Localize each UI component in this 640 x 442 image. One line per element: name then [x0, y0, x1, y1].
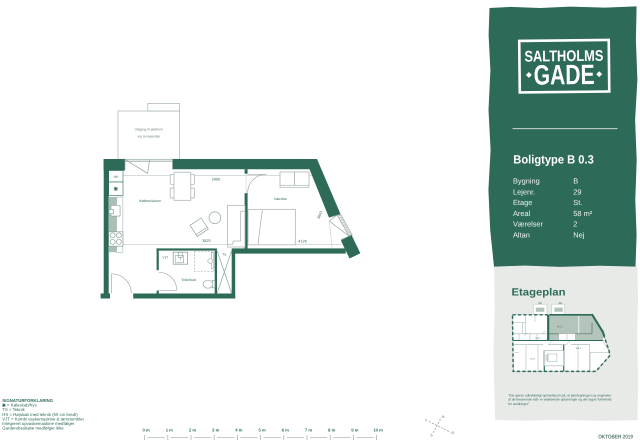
svg-text:for ændringer”: for ændringer” [508, 402, 529, 406]
svg-text:Altan: Altan [513, 230, 530, 239]
svg-text:4126: 4126 [298, 239, 306, 243]
svg-text:VJT: VJT [162, 256, 168, 260]
svg-text:N: N [442, 415, 445, 419]
svg-text:Etage: Etage [513, 198, 532, 207]
svg-text:3 m: 3 m [212, 427, 219, 432]
svg-text:Bygning: Bygning [513, 177, 540, 186]
svg-text:B 0.1: B 0.1 [530, 358, 536, 361]
svg-text:“Der gøres udtrykkeligt opmærk: “Der gøres udtrykkeligt opmærksom på, at… [508, 393, 611, 397]
svg-text:B 0.2: B 0.2 [535, 337, 541, 340]
svg-text:af de berørende mål- er vejled: af de berørende mål- er vejledende oplys… [508, 398, 611, 402]
svg-text:St.: St. [573, 198, 582, 207]
svg-text:29: 29 [573, 187, 581, 196]
svg-text:0 m: 0 m [142, 427, 149, 432]
svg-text:9 m: 9 m [351, 427, 358, 432]
svg-text:Lejenr.: Lejenr. [513, 187, 535, 196]
svg-text:OKTOBER 2019: OKTOBER 2019 [598, 434, 633, 440]
svg-text:8 m: 8 m [328, 427, 335, 432]
svg-text:B 0.3: B 0.3 [557, 326, 563, 329]
svg-text:2 m: 2 m [189, 427, 196, 432]
svg-text:Boligtype B 0.3: Boligtype B 0.3 [513, 153, 594, 167]
svg-text:Udgang til platform: Udgang til platform [135, 128, 164, 132]
svg-text:Etageplan: Etageplan [512, 286, 566, 298]
svg-text:5 m: 5 m [258, 427, 265, 432]
svg-text:Værelse: Værelse [274, 197, 287, 201]
svg-text:Værelser: Værelser [513, 220, 544, 229]
svg-text:Areal: Areal [513, 209, 531, 218]
svg-text:via terrassedør: via terrassedør [137, 135, 160, 139]
svg-text:Køkken/alrum: Køkken/alrum [139, 199, 161, 203]
svg-text:Ø: Ø [451, 431, 454, 435]
svg-text:10 m: 10 m [373, 427, 383, 432]
svg-text:HS: HS [114, 175, 118, 179]
svg-text:B 0.4: B 0.4 [576, 347, 582, 350]
svg-text:7 m: 7 m [305, 427, 312, 432]
svg-text:4 m: 4 m [235, 427, 242, 432]
svg-text:6 m: 6 m [282, 427, 289, 432]
svg-text:1 m: 1 m [166, 427, 173, 432]
svg-text:Toilet/bad: Toilet/bad [181, 278, 196, 282]
svg-text:58 m²: 58 m² [573, 209, 592, 218]
svg-text:5900: 5900 [212, 177, 220, 181]
svg-text:Garderobeskabe medfølger ikke: Garderobeskabe medfølger ikke [2, 426, 64, 431]
svg-text:Nej: Nej [573, 230, 584, 239]
svg-text:GADE: GADE [533, 59, 594, 91]
svg-text:3825: 3825 [202, 239, 210, 243]
svg-text:B: B [573, 177, 578, 186]
svg-text:2: 2 [573, 220, 577, 229]
